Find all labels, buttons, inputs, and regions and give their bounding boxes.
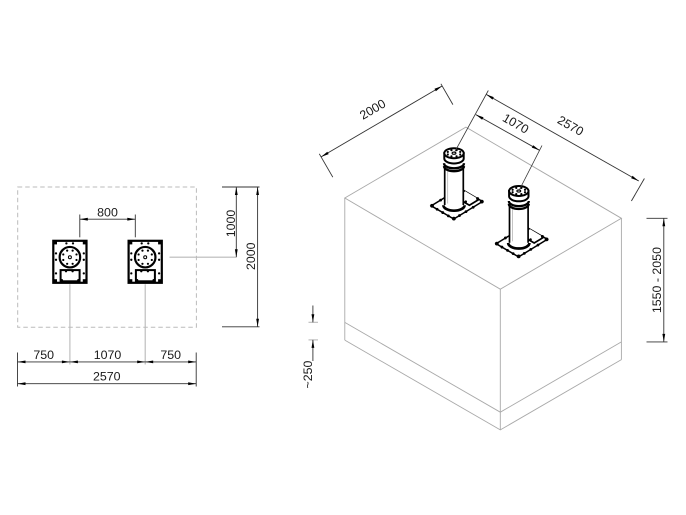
- svg-text:~250: ~250: [301, 360, 315, 388]
- svg-text:1070: 1070: [94, 348, 122, 362]
- svg-text:1000: 1000: [224, 210, 238, 238]
- svg-text:1550 - 2050: 1550 - 2050: [650, 247, 664, 313]
- svg-text:800: 800: [97, 205, 118, 219]
- svg-text:2570: 2570: [93, 370, 121, 384]
- svg-text:2000: 2000: [244, 242, 258, 270]
- svg-text:750: 750: [33, 348, 54, 362]
- svg-text:750: 750: [160, 348, 181, 362]
